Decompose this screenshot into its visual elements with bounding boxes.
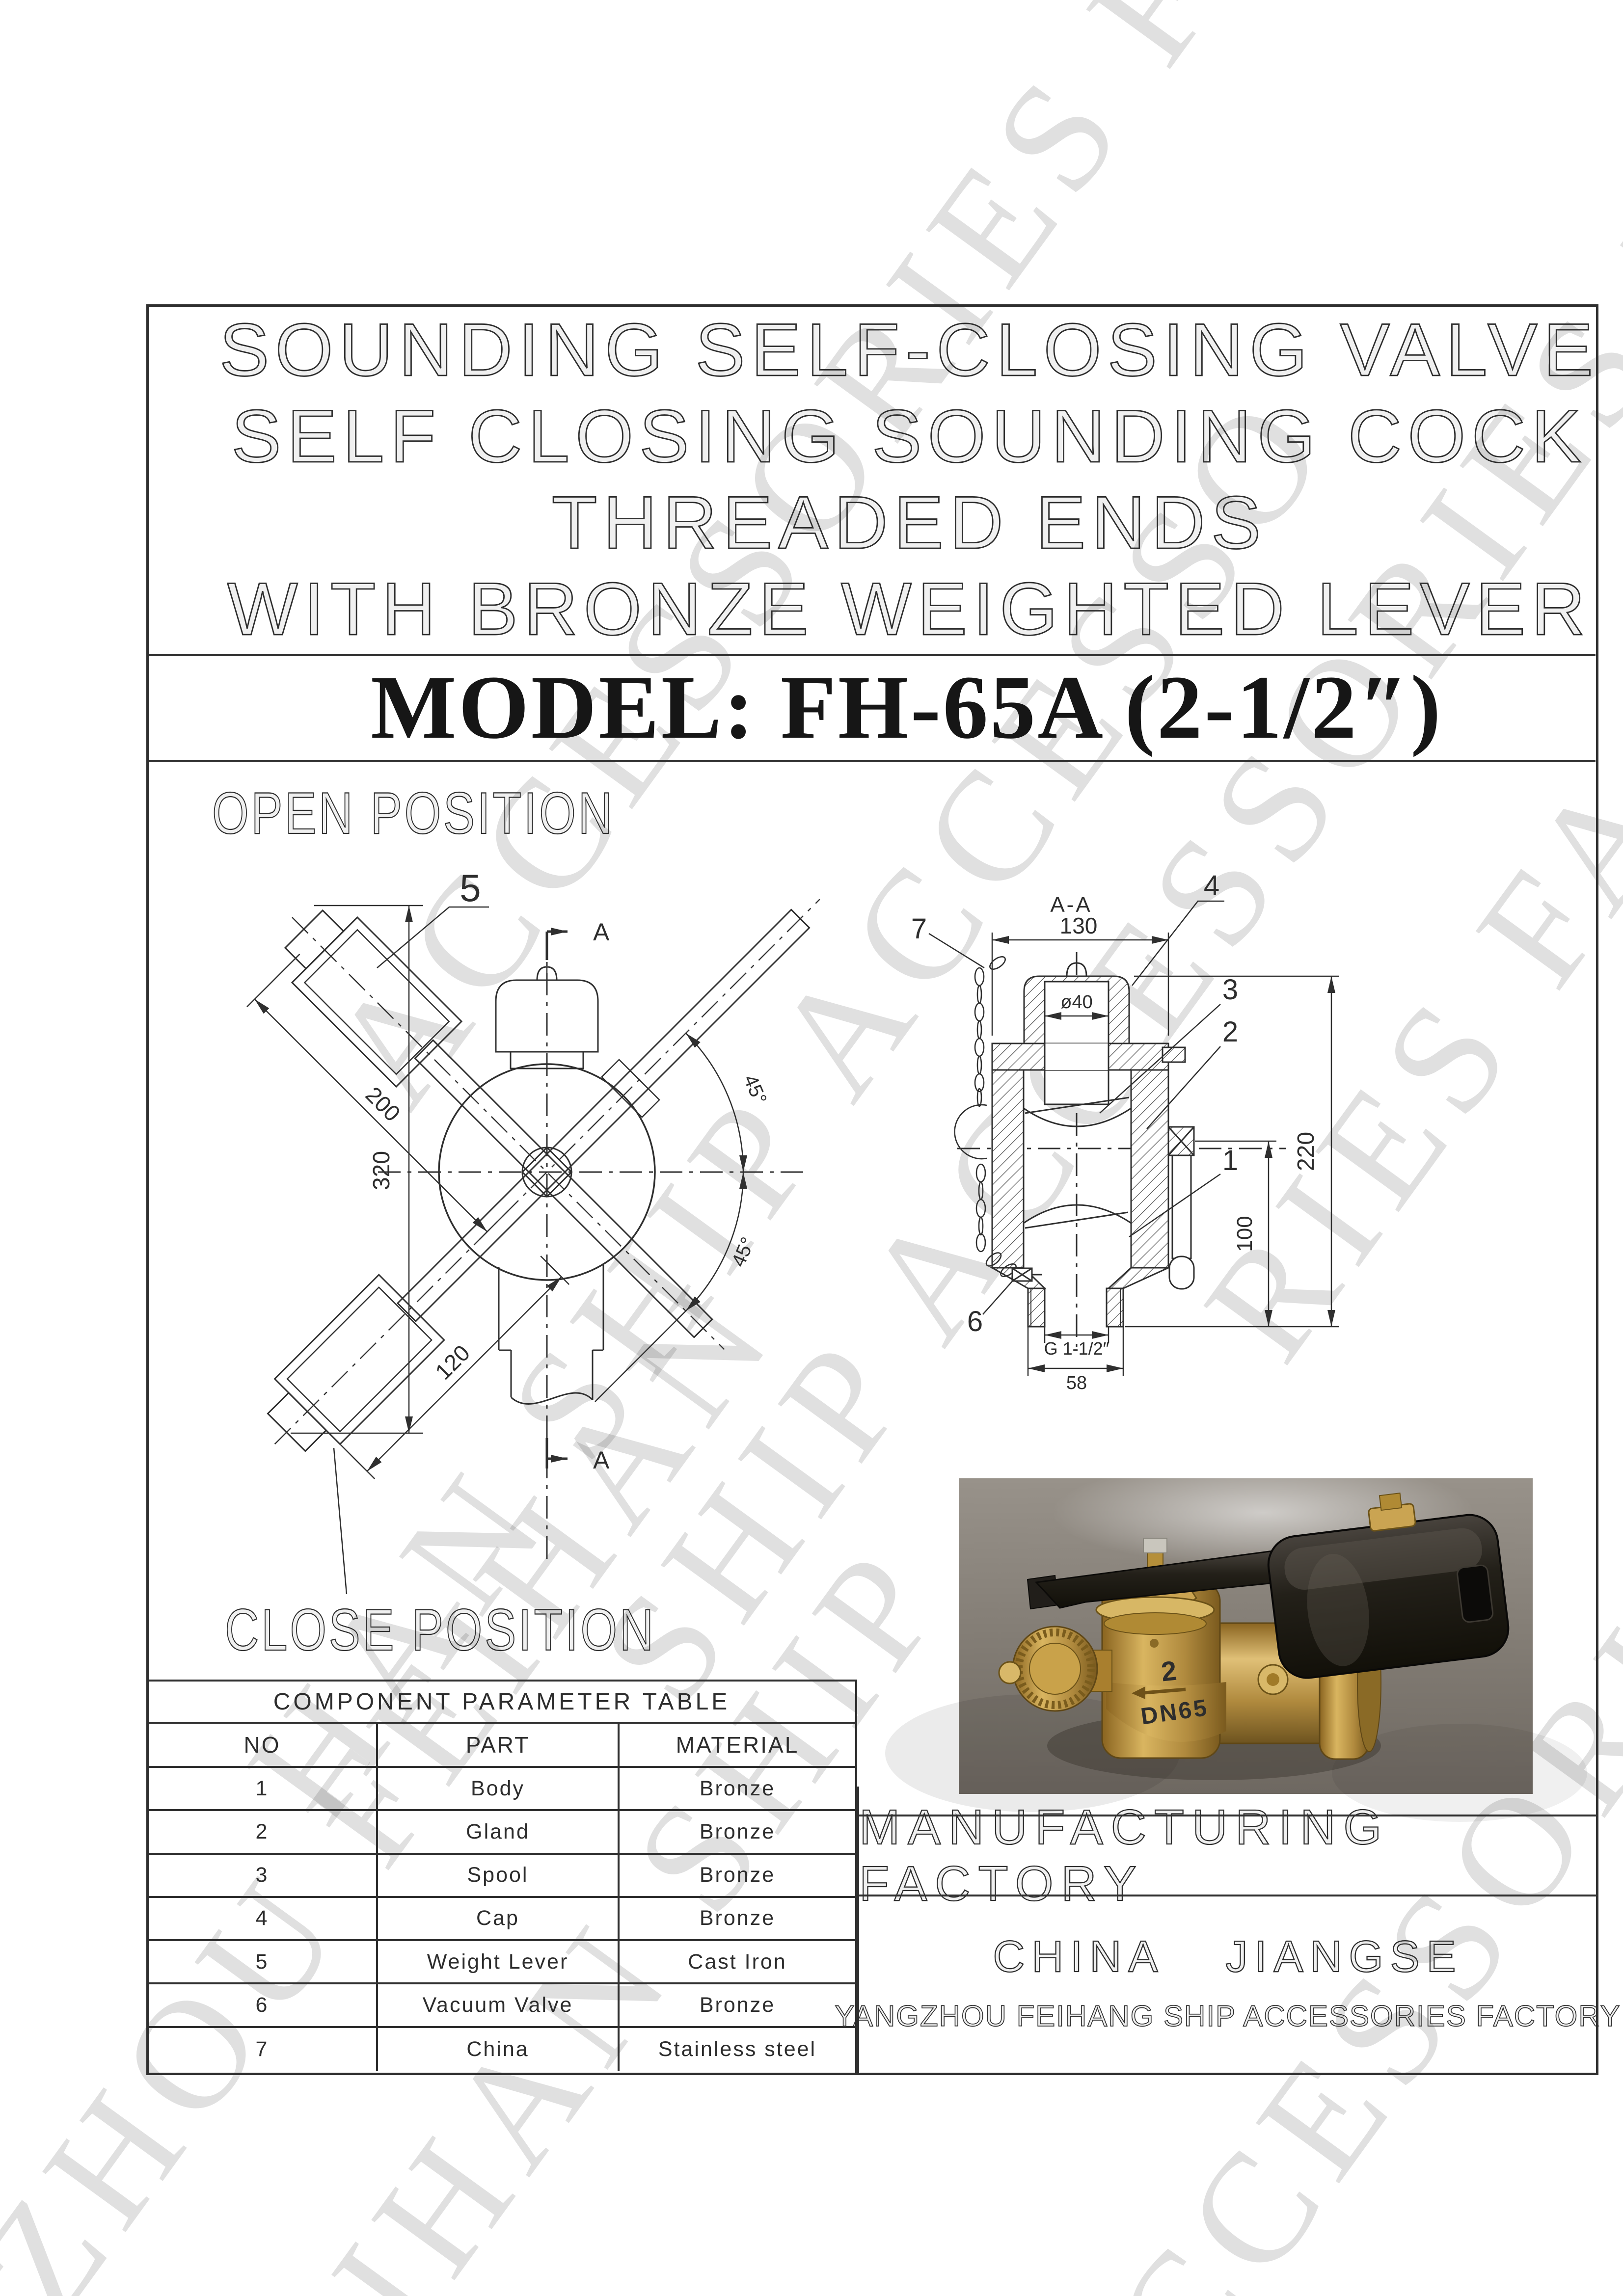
dim-200: 200 [361, 1082, 406, 1126]
table-row: Vacuum Valve [378, 1984, 620, 2028]
vacuum-valve [1012, 1268, 1042, 1281]
factory-block: MANUFACTURING FACTORY CHINA JIANGSE YANG… [857, 1815, 1598, 2075]
gland-lug [1163, 1047, 1185, 1062]
table-row: Cast Iron [620, 1941, 855, 1984]
title-line-3: THREADED ENDS [478, 480, 1267, 566]
table-row: 3 [148, 1855, 378, 1898]
title-line-2: SELF CLOSING SOUNDING COCK [158, 393, 1587, 480]
table-row: 2 [148, 1811, 378, 1854]
model-block: MODEL: FH-65A (2-1/2″) [149, 656, 1596, 759]
table-row: 1 [148, 1768, 378, 1811]
table-row: 5 [148, 1941, 378, 1984]
table-row: Weight Lever [378, 1941, 620, 1984]
table-title: COMPONENT PARAMETER TABLE [148, 1682, 855, 1724]
dim-220: 220 [1293, 1132, 1319, 1171]
dim-45-top: 45° [739, 1071, 771, 1107]
table-row: 6 [148, 1984, 378, 2028]
callout-1: 1 [1222, 1145, 1238, 1176]
pivot-pin [1168, 1127, 1194, 1155]
table-row: Spool [378, 1855, 620, 1898]
size-marking: 2 [1160, 1655, 1178, 1687]
table-row: 7 [148, 2028, 378, 2071]
table-row: Bronze [620, 1984, 855, 2028]
table-row: China [378, 2028, 620, 2071]
table-row: Cap [378, 1898, 620, 1941]
weight-lever-open: 200 [225, 885, 757, 1417]
callout-5-leader [377, 907, 489, 968]
table-row: Bronze [620, 1768, 855, 1811]
close-position-leader [334, 1448, 347, 1594]
body-wall-left [992, 1070, 1024, 1268]
callout-3: 3 [1222, 974, 1238, 1006]
model-text: MODEL: FH-65A (2-1/2″) [302, 655, 1443, 760]
callout-2: 2 [1222, 1016, 1238, 1048]
table-row: Gland [378, 1811, 620, 1854]
callout-6: 6 [967, 1306, 983, 1337]
open-position-drawing: 200 120 [157, 854, 874, 1669]
drawing-sheet: ACCESSORIES FACTORY RIES FACTO SHIP ACCE… [0, 0, 1623, 2296]
dim-100: 100 [1233, 1216, 1257, 1252]
dim-58: 58 [1066, 1373, 1087, 1393]
factory-heading: MANUFACTURING FACTORY [859, 1816, 1596, 1896]
dim-130: 130 [1060, 913, 1098, 938]
lever-link [1169, 1155, 1194, 1289]
dim-320-lines [291, 906, 423, 1433]
callout-4: 4 [1204, 870, 1219, 902]
product-photo: 2 DN65 [959, 1478, 1533, 1794]
title-line-4: WITH BRONZE WEIGHTED LEVER [154, 566, 1591, 652]
factory-country: CHINA JIANGSE [993, 1932, 1462, 1982]
table-row: 4 [148, 1898, 378, 1941]
dim-320: 320 [369, 1151, 395, 1190]
callout-7: 7 [911, 913, 927, 945]
factory-name: YANGZHOU FEIHANG SHIP ACCESSORIES FACTOR… [835, 1999, 1621, 2033]
col-header-no: NO [148, 1724, 378, 1768]
table-row: Bronze [620, 1898, 855, 1941]
col-header-material: MATERIAL [620, 1724, 855, 1768]
component-parameter-table: COMPONENT PARAMETER TABLE NO PART MATERI… [146, 1680, 857, 2075]
dim-thread: G 1-1/2″ [1044, 1338, 1109, 1359]
table-row: Bronze [620, 1855, 855, 1898]
section-letter-top: A [593, 918, 610, 946]
callout-5: 5 [460, 866, 481, 909]
dim-45-bottom: 45° [728, 1234, 759, 1270]
bottom-pipe [499, 1264, 603, 1404]
title-block: SOUNDING SELF-CLOSING VALVE SELF CLOSING… [149, 307, 1596, 652]
title-line-1: SOUNDING SELF-CLOSING VALVE [146, 307, 1599, 393]
model-divider [146, 760, 1596, 762]
section-aa-drawing: A-A 130 ø40 220 100 G 1-1/2″ 58 7 4 3 2 … [903, 864, 1502, 1502]
col-header-part: PART [378, 1724, 620, 1768]
dim-bore: ø40 [1060, 992, 1092, 1013]
section-letter-bottom: A [593, 1446, 610, 1474]
table-row: Stainless steel [620, 2028, 855, 2071]
body-wall-right [1131, 1070, 1168, 1268]
table-row: Bronze [620, 1811, 855, 1854]
table-row: Body [378, 1768, 620, 1811]
open-position-label: OPEN POSITION [212, 779, 615, 847]
lever-pivot-bolt [1143, 1538, 1167, 1553]
